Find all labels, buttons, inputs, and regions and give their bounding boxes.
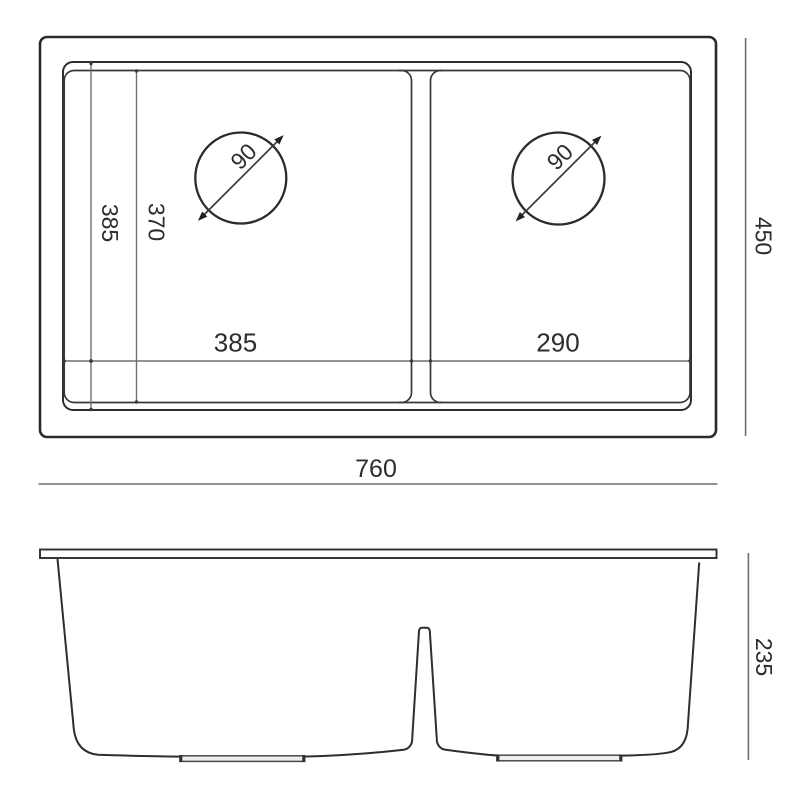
svg-text:235: 235 — [751, 638, 777, 676]
svg-text:370: 370 — [144, 203, 170, 241]
svg-text:450: 450 — [751, 217, 777, 255]
svg-text:290: 290 — [536, 328, 579, 358]
svg-text:385: 385 — [97, 204, 123, 242]
svg-text:760: 760 — [355, 455, 397, 483]
svg-text:385: 385 — [214, 328, 257, 358]
